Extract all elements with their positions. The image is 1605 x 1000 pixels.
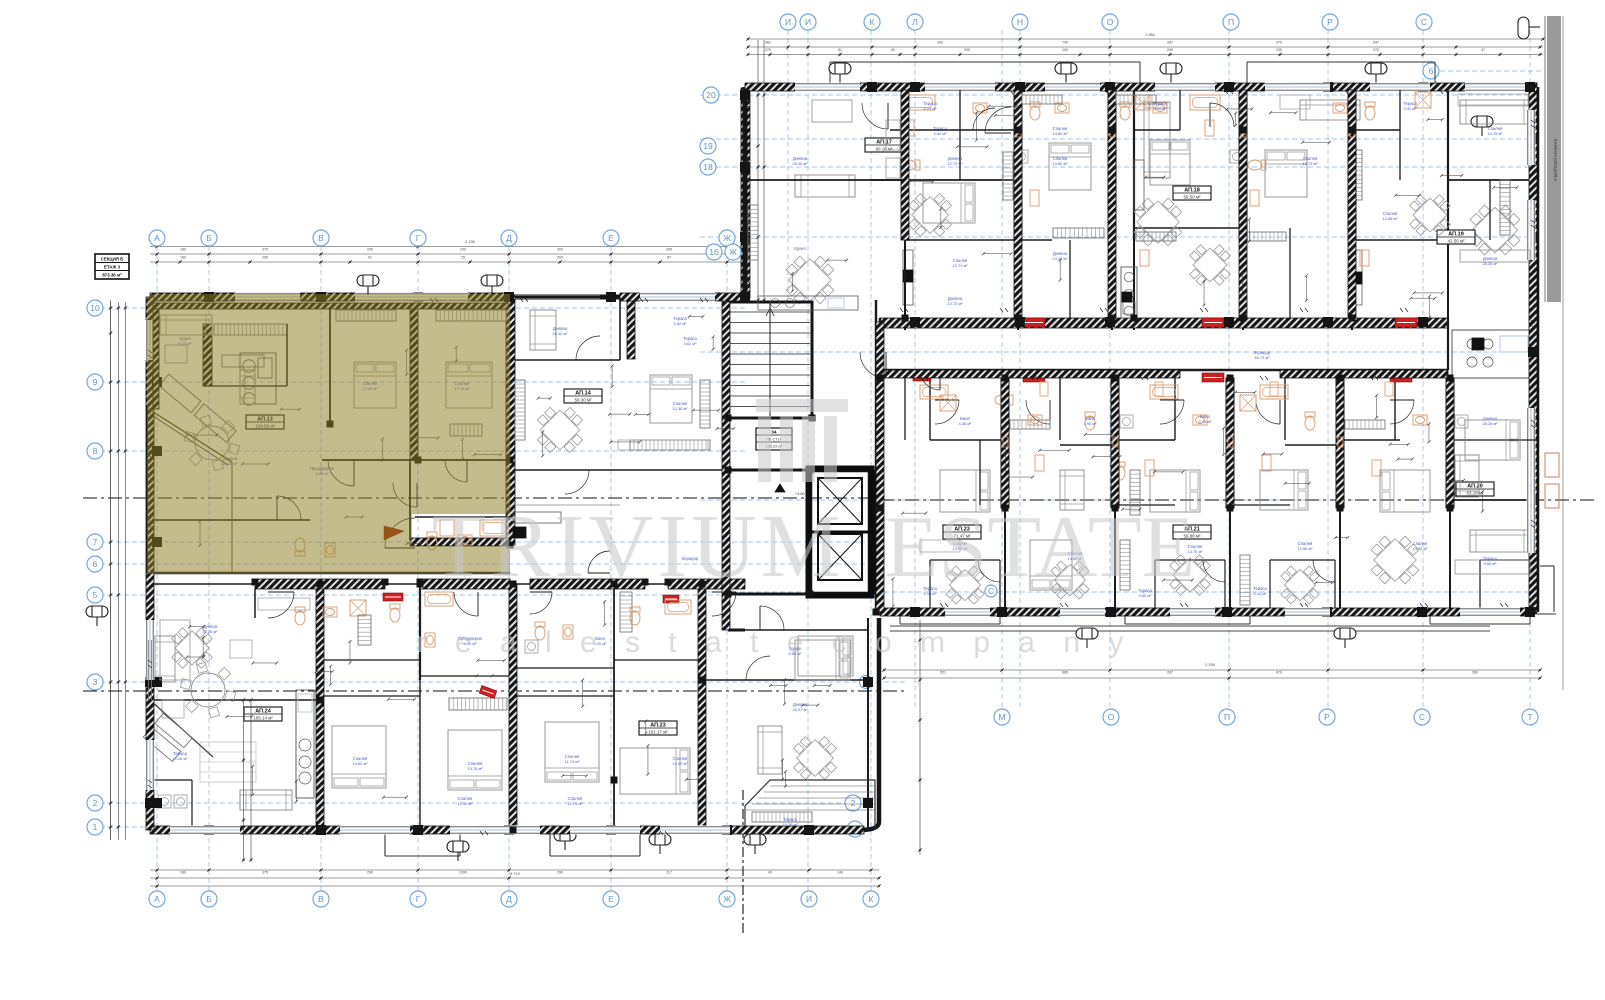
svg-text:90.18 м²: 90.18 м²: [875, 147, 893, 152]
svg-text:101.17 м²: 101.17 м²: [648, 730, 668, 735]
svg-text:12.66 м²: 12.66 м²: [1297, 546, 1313, 551]
svg-text:67: 67: [667, 256, 671, 260]
svg-text:390: 390: [937, 41, 943, 45]
svg-text:Г: Г: [416, 894, 421, 904]
svg-text:970: 970: [1276, 671, 1282, 675]
svg-text:13.76 м²: 13.76 м²: [467, 766, 483, 771]
svg-text:И: И: [805, 17, 811, 27]
svg-text:60: 60: [891, 48, 895, 52]
svg-text:Ж: Ж: [729, 247, 737, 257]
svg-text:2: 2: [93, 798, 98, 808]
svg-text:19: 19: [703, 141, 713, 151]
svg-text:Б: Б: [206, 233, 212, 243]
svg-text:КАЛКАН СЕКЦИЯ А: КАЛКАН СЕКЦИЯ А: [1553, 139, 1558, 183]
svg-text:4.23 м²: 4.23 м²: [924, 106, 938, 111]
svg-text:8: 8: [93, 446, 98, 456]
svg-text:300: 300: [557, 248, 563, 252]
svg-text:АП.14: АП.14: [575, 391, 591, 397]
svg-text:К: К: [869, 894, 874, 904]
svg-text:26.07 м²: 26.07 м²: [792, 707, 808, 712]
svg-text:Г: Г: [416, 233, 421, 243]
svg-text:Т: Т: [1527, 712, 1532, 722]
svg-text:П: П: [1228, 17, 1234, 27]
svg-text:749: 749: [1062, 41, 1068, 45]
svg-text:28.26 м²: 28.26 м²: [1482, 261, 1498, 266]
svg-text:290: 290: [367, 871, 373, 875]
svg-text:970: 970: [1276, 41, 1282, 45]
svg-text:04: 04: [771, 430, 777, 435]
svg-text:Р: Р: [1324, 712, 1330, 722]
svg-text:АП.19: АП.19: [1448, 232, 1464, 238]
svg-text:9.60 м²: 9.60 м²: [1484, 561, 1498, 566]
svg-text:10.26 м²: 10.26 м²: [172, 756, 188, 761]
svg-text:290: 290: [367, 248, 373, 252]
svg-text:ЕТАЖ 3: ЕТАЖ 3: [104, 265, 121, 270]
svg-text:TRIVIUM: TRIVIUM: [432, 497, 845, 596]
svg-text:18: 18: [703, 162, 713, 172]
svg-text:59.50 м²: 59.50 м²: [1183, 195, 1201, 200]
svg-text:25: 25: [461, 256, 465, 260]
svg-text:12.71 м²: 12.71 м²: [952, 263, 968, 268]
svg-text:12.38 м²: 12.38 м²: [672, 406, 688, 411]
svg-text:2 984: 2 984: [1145, 33, 1155, 37]
svg-text:СЕКЦИЯ Б: СЕКЦИЯ Б: [101, 257, 124, 262]
svg-text:481: 481: [765, 41, 771, 45]
svg-text:5: 5: [93, 590, 98, 600]
svg-text:В: В: [318, 233, 324, 243]
svg-text:Д: Д: [506, 894, 512, 904]
svg-text:26.40 м²: 26.40 м²: [792, 161, 808, 166]
svg-text:4.62 м²: 4.62 м²: [674, 321, 688, 326]
svg-text:12.50 м²: 12.50 м²: [457, 801, 473, 806]
svg-text:Кухня: Кухня: [794, 246, 805, 251]
svg-text:12.88 м²: 12.88 м²: [1382, 216, 1398, 221]
svg-text:26.40 м²: 26.40 м²: [552, 331, 568, 336]
svg-text:2 135: 2 135: [465, 240, 475, 244]
svg-text:11.74 м²: 11.74 м²: [568, 801, 584, 806]
svg-text:10: 10: [90, 303, 100, 313]
svg-text:12.73 м²: 12.73 м²: [1302, 161, 1318, 166]
svg-text:К: К: [870, 17, 875, 27]
svg-text:О: О: [1107, 17, 1114, 27]
svg-text:11.74 м²: 11.74 м²: [565, 759, 581, 764]
svg-text:АП.24: АП.24: [255, 709, 271, 715]
svg-text:Н: Н: [1017, 17, 1023, 27]
svg-text:287: 287: [1167, 671, 1173, 675]
svg-text:180: 180: [180, 248, 186, 252]
svg-text:47: 47: [1481, 48, 1485, 52]
svg-text:100: 100: [1062, 48, 1068, 52]
svg-text:5.40 м²: 5.40 м²: [1154, 106, 1168, 111]
svg-text:42.56 м²: 42.56 м²: [1447, 239, 1465, 244]
svg-text:С: С: [1421, 17, 1427, 27]
svg-text:АП.20: АП.20: [1467, 484, 1483, 490]
svg-text:6: 6: [1429, 66, 1434, 76]
svg-text:180: 180: [180, 256, 186, 260]
svg-text:Е: Е: [608, 894, 614, 904]
svg-text:4.62 м²: 4.62 м²: [684, 341, 698, 346]
svg-text:7: 7: [93, 537, 98, 547]
svg-text:+3.80: +3.80: [795, 492, 805, 496]
svg-text:АП.18: АП.18: [1184, 188, 1200, 194]
svg-text:Б: Б: [206, 894, 212, 904]
svg-text:46.73 м²: 46.73 м²: [1254, 355, 1270, 360]
svg-text:290: 290: [557, 871, 563, 875]
svg-text:149: 149: [837, 871, 843, 875]
svg-text:117: 117: [666, 871, 672, 875]
svg-text:230: 230: [1276, 48, 1282, 52]
svg-text:5.42 м²: 5.42 м²: [1404, 106, 1418, 111]
svg-text:4.62 м²: 4.62 м²: [934, 131, 948, 136]
svg-text:П: П: [1224, 712, 1230, 722]
svg-text:345: 345: [666, 248, 672, 252]
svg-text:14.60 м²: 14.60 м²: [352, 761, 368, 766]
svg-text:91: 91: [368, 256, 372, 260]
svg-text:290: 290: [262, 256, 268, 260]
svg-text:200: 200: [964, 48, 970, 52]
svg-text:4.38 м²: 4.38 м²: [959, 421, 973, 426]
svg-text:873.36 м²: 873.36 м²: [102, 273, 122, 278]
svg-text:375: 375: [262, 248, 268, 252]
svg-text:О: О: [1108, 712, 1115, 722]
svg-text:А: А: [154, 894, 160, 904]
svg-text:r e a l e s t a t e c o m: r e a l e s t a t e c o m p a n y: [417, 626, 1134, 659]
svg-text:9: 9: [93, 377, 98, 387]
svg-text:28.26 м²: 28.26 м²: [1482, 421, 1498, 426]
svg-text:В: В: [318, 894, 324, 904]
svg-text:22.72 м²: 22.72 м²: [947, 161, 963, 166]
svg-text:270: 270: [1373, 48, 1379, 52]
svg-text:14.75 м²: 14.75 м²: [1487, 131, 1503, 136]
svg-text:32.25 м²: 32.25 м²: [202, 629, 218, 634]
svg-text:С: С: [1419, 712, 1425, 722]
svg-text:14.09 м²: 14.09 м²: [672, 761, 688, 766]
svg-text:375: 375: [262, 871, 268, 875]
svg-text:10.36 м²: 10.36 м²: [782, 822, 798, 827]
svg-text:И: И: [785, 17, 791, 27]
svg-text:287: 287: [1167, 41, 1173, 45]
svg-text:14.80 м²: 14.80 м²: [1052, 161, 1068, 166]
svg-text:АП.17: АП.17: [876, 140, 892, 146]
svg-text:685: 685: [1062, 671, 1068, 675]
svg-text:Е: Е: [608, 233, 614, 243]
svg-text:2: 2: [851, 798, 856, 808]
svg-text:81: 81: [838, 48, 842, 52]
svg-text:521: 521: [940, 671, 946, 675]
svg-text:370: 370: [765, 48, 771, 52]
svg-text:43: 43: [768, 871, 772, 875]
svg-text:3.90 м²: 3.90 м²: [1084, 421, 1098, 426]
svg-text:16: 16: [709, 247, 719, 257]
svg-text:М: М: [998, 712, 1005, 722]
svg-text:Ж: Ж: [723, 233, 731, 243]
svg-text:Д: Д: [506, 233, 512, 243]
svg-text:22.72 м²: 22.72 м²: [947, 301, 963, 306]
svg-text:20: 20: [706, 90, 716, 100]
svg-text:8 719: 8 719: [510, 872, 520, 876]
svg-text:3: 3: [93, 677, 98, 687]
svg-text:59.30 м²: 59.30 м²: [574, 398, 592, 403]
svg-text:Л: Л: [912, 17, 918, 27]
svg-text:АП.23: АП.23: [650, 723, 666, 729]
svg-text:6: 6: [93, 559, 98, 569]
svg-text:14.80 м²: 14.80 м²: [1052, 131, 1068, 136]
svg-text:347: 347: [1373, 41, 1379, 45]
svg-text:4.14 м²: 4.14 м²: [1199, 419, 1213, 424]
svg-text:180: 180: [180, 871, 186, 875]
svg-text:290: 290: [1167, 48, 1173, 52]
svg-text:260: 260: [557, 256, 563, 260]
svg-text:ESTATE: ESTATE: [885, 499, 1196, 596]
svg-text:Р: Р: [1327, 17, 1333, 27]
svg-text:2 339: 2 339: [1205, 663, 1215, 667]
svg-text:240: 240: [460, 248, 466, 252]
svg-text:Ж: Ж: [723, 894, 731, 904]
svg-text:1: 1: [93, 822, 98, 832]
svg-text:1300: 1300: [459, 871, 467, 875]
svg-text:260: 260: [1472, 671, 1478, 675]
svg-text:И: И: [806, 894, 812, 904]
svg-text:4.10 м²: 4.10 м²: [1254, 591, 1268, 596]
svg-text:14.09 м²: 14.09 м²: [1412, 546, 1428, 551]
svg-text:А: А: [154, 233, 160, 243]
svg-text:105.14 м²: 105.14 м²: [253, 716, 273, 721]
